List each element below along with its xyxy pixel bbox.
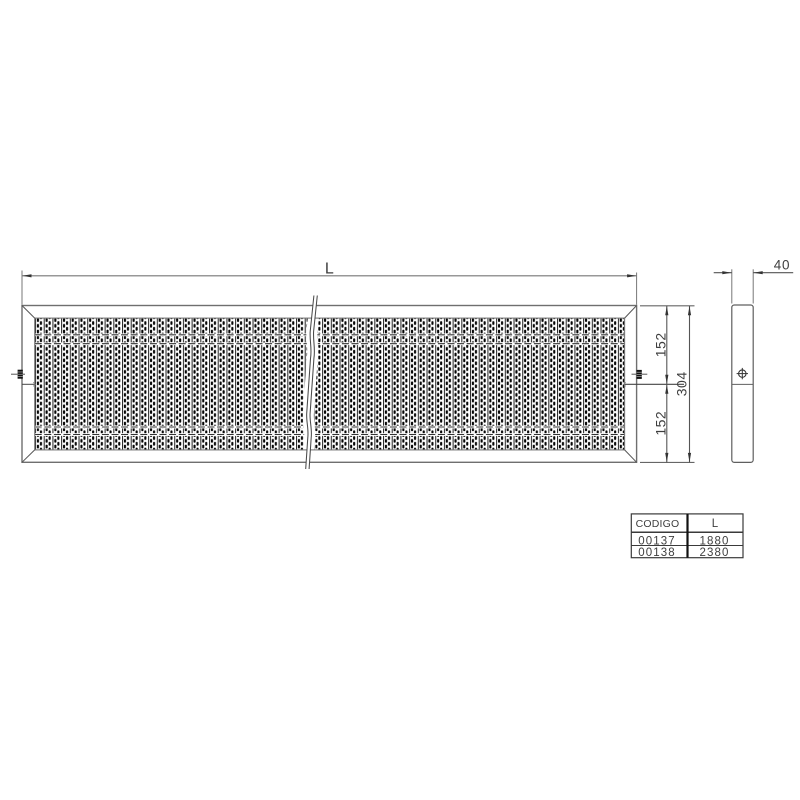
svg-text:152: 152 [653,411,669,436]
svg-text:CODIGO: CODIGO [636,518,680,530]
svg-text:2380: 2380 [700,547,730,559]
svg-text:1880: 1880 [700,535,730,547]
svg-text:40: 40 [774,257,791,272]
svg-text:00137: 00137 [638,535,675,547]
svg-text:00138: 00138 [638,547,675,559]
svg-text:L: L [325,260,334,277]
svg-text:304: 304 [674,371,690,396]
svg-text:152: 152 [653,332,669,357]
svg-text:L: L [712,518,719,530]
